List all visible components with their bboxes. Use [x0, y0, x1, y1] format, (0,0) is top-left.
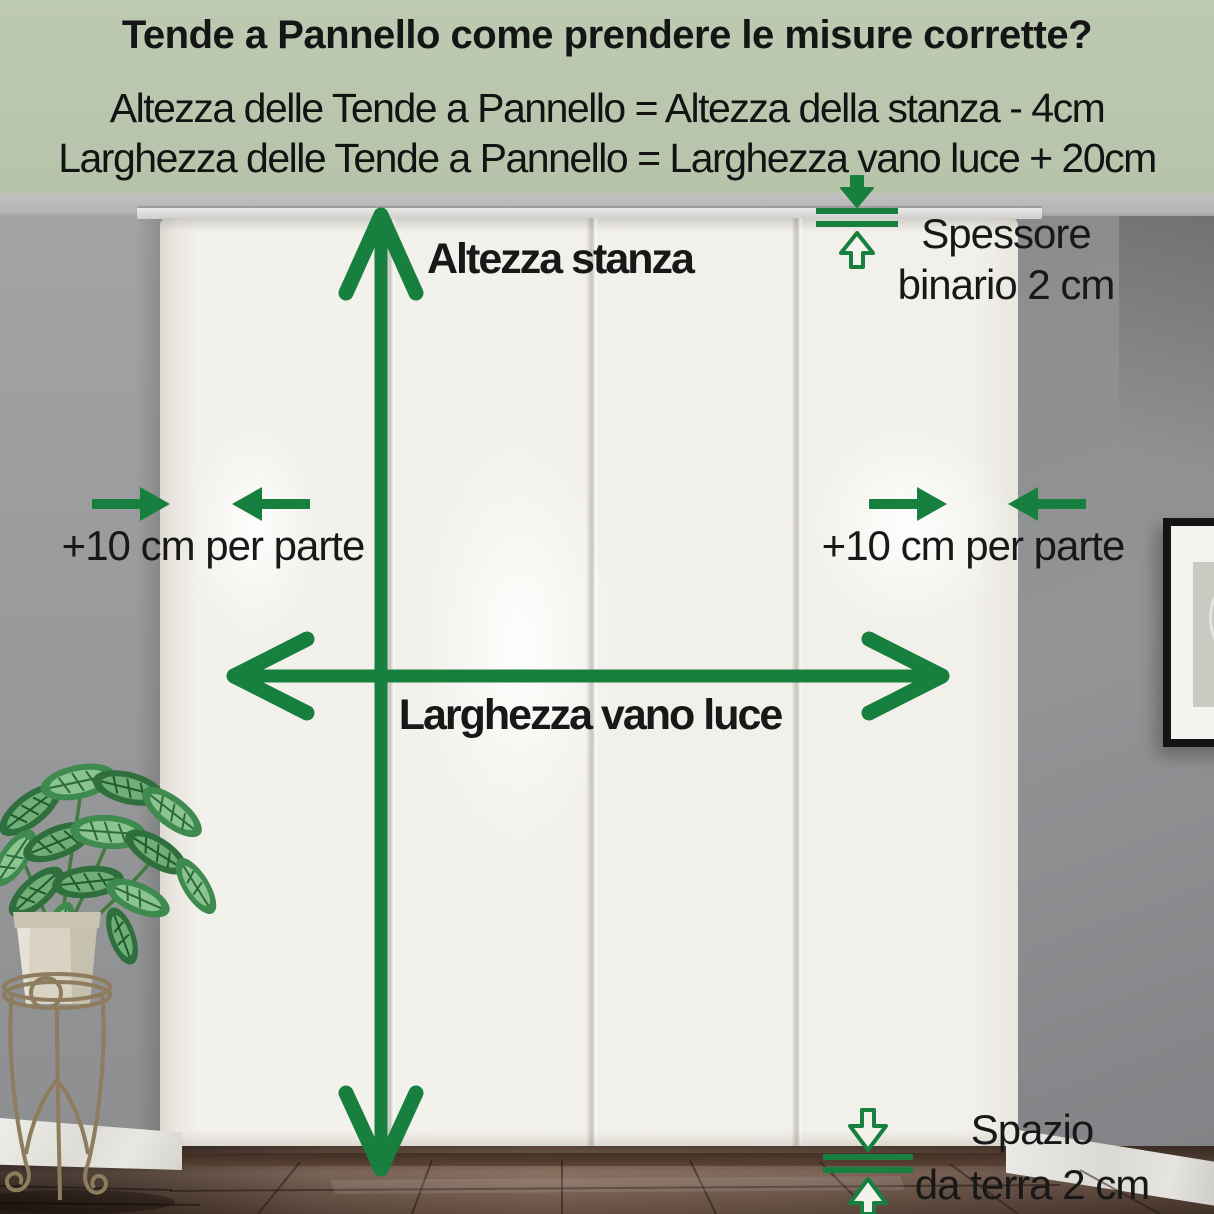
- side-allowance-label-left: +10 cm per parte: [62, 523, 365, 569]
- panel-seam: [586, 218, 598, 1160]
- height-formula: Altezza delle Tende a Pannello = Altezza…: [110, 83, 1105, 133]
- track-thickness-line2: binario 2 cm: [898, 259, 1115, 310]
- artwork-circle: [1209, 572, 1214, 664]
- plant-stand: [4, 974, 110, 1200]
- panel-seam: [384, 218, 396, 1160]
- room-height-label: Altezza stanza: [427, 236, 693, 283]
- panel-seam: [791, 218, 803, 1160]
- potted-plant: [0, 740, 250, 1214]
- track-thickness-label: Spessore binario 2 cm: [898, 208, 1115, 310]
- panel-curtains: [160, 218, 1018, 1160]
- frame-mat: [1171, 526, 1214, 739]
- floor-gap-label: Spazio da terra 2 cm: [915, 1102, 1149, 1212]
- infographic-canvas: Tende a Pannello come prendere le misure…: [0, 0, 1214, 1214]
- picture-frame: [1163, 518, 1214, 747]
- track-thickness-line1: Spessore: [898, 208, 1115, 259]
- side-allowance-label-right: +10 cm per parte: [822, 523, 1125, 569]
- header-band: Tende a Pannello come prendere le misure…: [0, 0, 1214, 193]
- page-title: Tende a Pannello come prendere le misure…: [122, 13, 1092, 58]
- floor-gap-line2: da terra 2 cm: [915, 1157, 1149, 1212]
- width-formula: Larghezza delle Tende a Pannello = Largh…: [58, 133, 1156, 183]
- floor-gap-line1: Spazio: [915, 1102, 1149, 1157]
- plant-pot: [13, 912, 101, 1004]
- opening-width-label: Larghezza vano luce: [399, 692, 782, 739]
- frame-artwork: [1193, 562, 1214, 707]
